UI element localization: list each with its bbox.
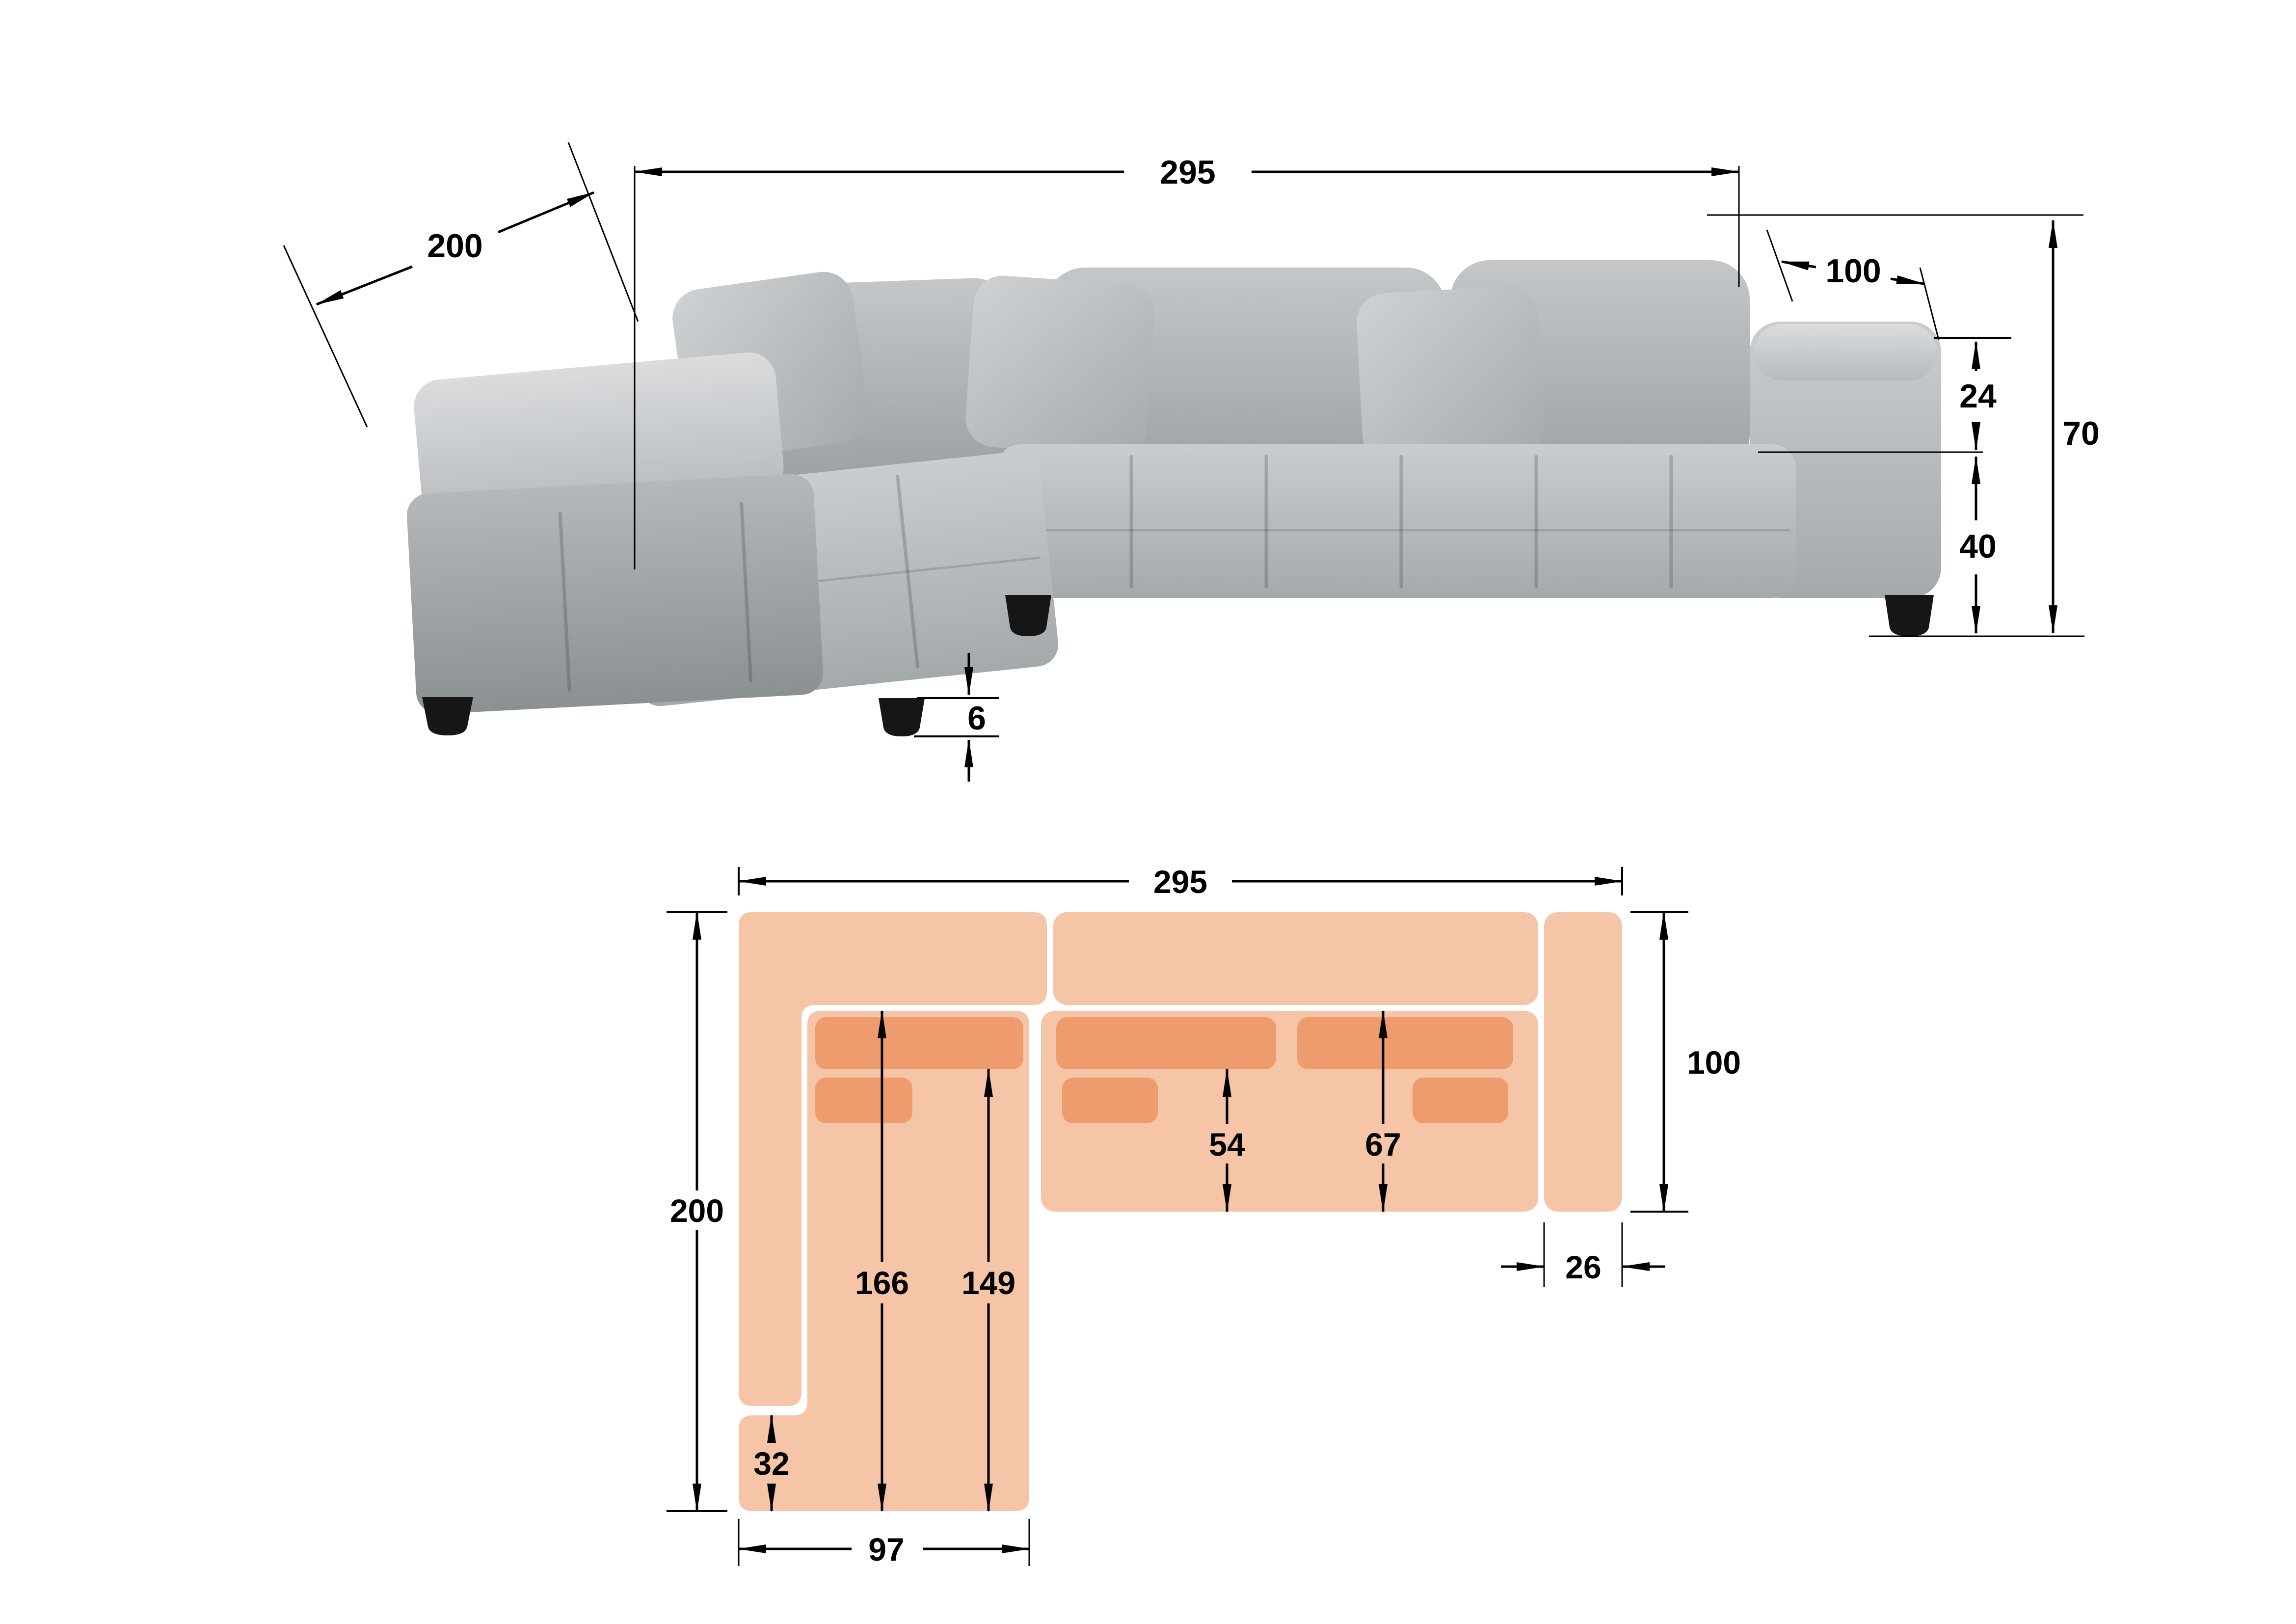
dim-total-depth-plan: 200 <box>667 912 727 1511</box>
plan-seat-cushion-right <box>1297 1017 1513 1069</box>
diagram-canvas: 295 200 100 <box>0 0 2296 1624</box>
dim-label-total-depth-plan: 200 <box>670 1192 724 1229</box>
dim-side-depth-plan: 100 <box>1630 912 1741 1212</box>
sofa-leg <box>1885 595 1934 636</box>
throw-pillow-middle <box>963 274 1157 458</box>
sofa-leg <box>879 698 925 736</box>
plan-armrest <box>1544 912 1622 1212</box>
sofa-leg <box>422 697 473 735</box>
dim-label-chaise-width: 97 <box>868 1531 904 1568</box>
dim-label-chaise-depth-photo: 200 <box>427 227 482 265</box>
dim-chaise-width-plan: 97 <box>739 1519 1029 1568</box>
sofa-photo-figure: 295 200 100 <box>284 142 2100 782</box>
dim-label-overall-width-plan: 295 <box>1153 864 1207 900</box>
dim-label-chaise-front-section: 32 <box>753 1445 789 1482</box>
sofa-leg <box>1005 595 1051 636</box>
dim-label-chaise-usable-length: 149 <box>961 1265 1015 1301</box>
sofa-illustration <box>406 260 1941 736</box>
dim-label-chaise-inner-length: 166 <box>855 1265 909 1301</box>
dim-seat-height-photo: 40 <box>1959 457 1997 633</box>
dim-label-overall-height-photo: 70 <box>2062 415 2100 452</box>
plan-seat-pillow-right <box>1413 1078 1508 1123</box>
dim-label-seat-height: 40 <box>1959 528 1997 565</box>
plan-seat-cushion-left <box>1056 1017 1276 1069</box>
dim-label-leg-height: 6 <box>967 700 986 737</box>
plan-figure: 295 200 100 <box>667 864 1741 1568</box>
main-seat <box>996 444 1796 598</box>
throw-pillow-right <box>1355 285 1546 466</box>
dim-label-seat-depth-total: 67 <box>1365 1126 1401 1163</box>
chaise-front-block <box>406 473 824 715</box>
plan-backrest-band <box>1053 912 1538 1005</box>
dim-label-seat-depth-front: 54 <box>1209 1126 1245 1163</box>
dim-label-armrest-depth-photo: 100 <box>1825 252 1881 290</box>
dim-label-armrest-width-plan: 26 <box>1565 1249 1601 1285</box>
dim-armrest-width-plan: 26 <box>1501 1222 1665 1287</box>
plan-chaise-pillow <box>815 1078 912 1123</box>
plan-seat-pillow-left <box>1062 1078 1158 1123</box>
dim-overall-width-plan: 295 <box>739 864 1622 900</box>
plan-shapes <box>739 912 1622 1511</box>
dim-label-side-depth-plan: 100 <box>1687 1044 1741 1081</box>
dim-label-backrest-above-seat: 24 <box>1959 378 1997 415</box>
dim-label-overall-width-photo: 295 <box>1160 154 1215 191</box>
plan-chaise-back-cushion <box>815 1017 1023 1069</box>
